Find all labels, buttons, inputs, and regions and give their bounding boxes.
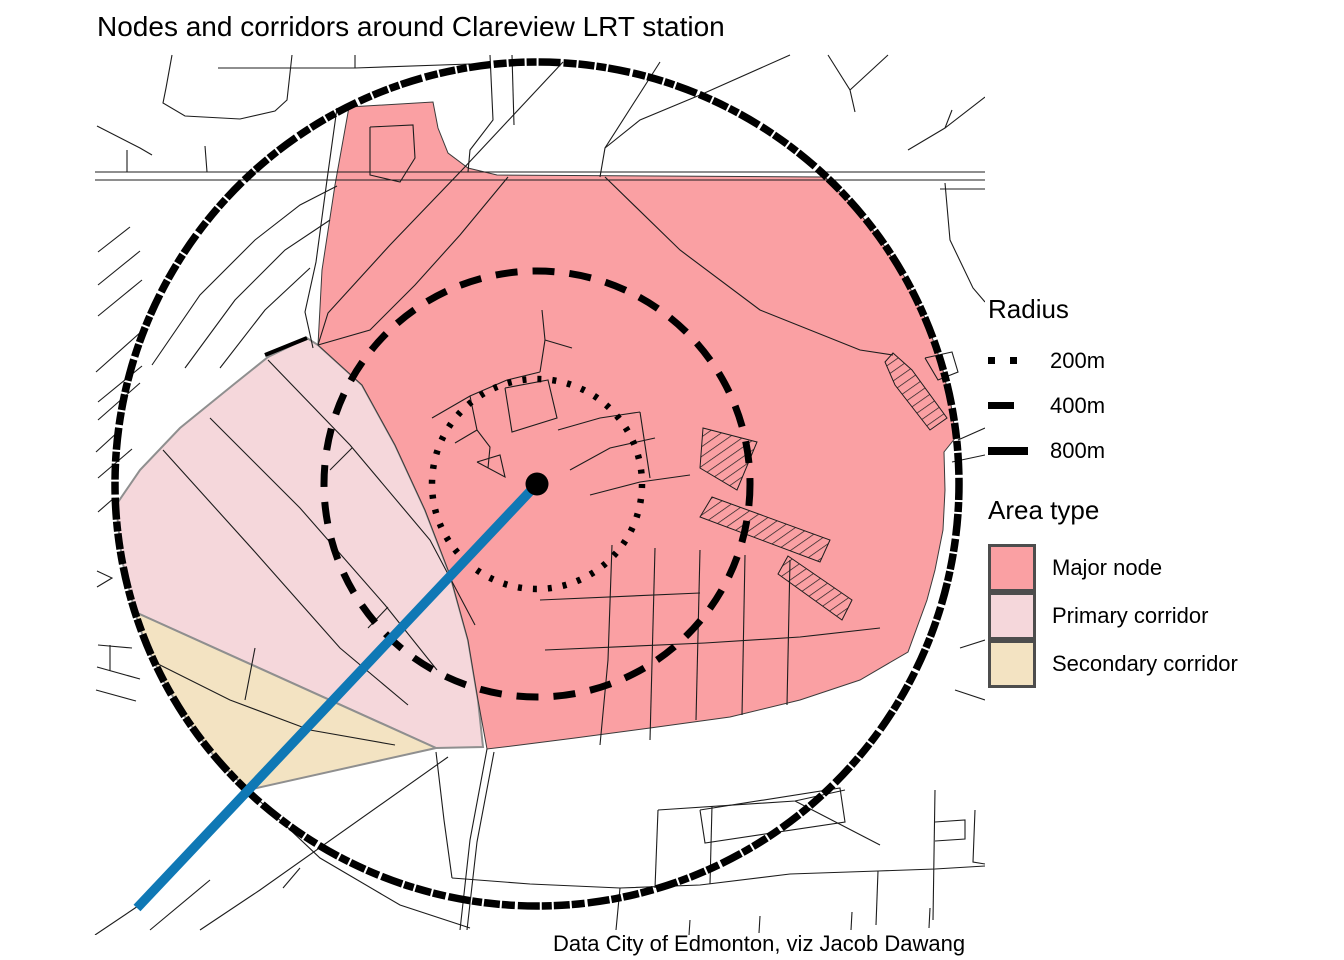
map-road [955, 690, 985, 700]
map-road [152, 186, 337, 365]
page-title: Nodes and corridors around Clareview LRT… [97, 11, 725, 43]
map-road [468, 55, 493, 172]
legend: Radius 200m 400m 800m Area type Major no… [988, 294, 1338, 688]
map-road [218, 55, 355, 68]
map-road [933, 790, 935, 920]
legend-area-label: Primary corridor [1036, 603, 1208, 629]
map-road [98, 280, 142, 316]
legend-radius-item-200m: 200m [988, 338, 1338, 383]
map-road [655, 810, 658, 888]
map-road [929, 908, 930, 928]
legend-area-item: Secondary corridor [988, 640, 1338, 688]
map-road [945, 183, 985, 302]
legend-area-label: Major node [1036, 555, 1162, 581]
figure: Nodes and corridors around Clareview LRT… [0, 0, 1344, 960]
map-road [205, 146, 207, 172]
map-road [97, 571, 112, 587]
map-road [850, 55, 888, 90]
map-road [960, 640, 985, 648]
map-road [935, 820, 965, 841]
map-road [283, 868, 300, 888]
legend-radius-label: 200m [1032, 348, 1105, 374]
legend-area-type: Area type Major node Primary corridor Se… [988, 495, 1338, 688]
map-road [97, 126, 152, 155]
map-road [98, 251, 140, 285]
map-road [851, 912, 852, 930]
map-road [98, 227, 130, 252]
map-road [958, 428, 985, 440]
color-swatch [988, 544, 1036, 592]
color-swatch [988, 640, 1036, 688]
map-road [98, 645, 132, 648]
map-road [436, 752, 452, 878]
map-road [605, 55, 790, 148]
legend-area-label: Secondary corridor [1036, 651, 1238, 677]
station-dot [526, 473, 549, 496]
legend-radius-label: 800m [1032, 438, 1105, 464]
legend-radius-label: 400m [1032, 393, 1105, 419]
map-road [828, 55, 855, 112]
map-road [97, 667, 140, 679]
map-road [452, 866, 985, 888]
map-road [96, 690, 136, 701]
solid-line-swatch [988, 447, 1032, 455]
legend-area-title: Area type [988, 495, 1338, 526]
legend-radius-title: Radius [988, 294, 1338, 325]
caption: Data City of Edmonton, viz Jacob Dawang [553, 931, 965, 957]
dots-line-swatch [988, 357, 1032, 364]
dash-line-swatch [988, 402, 1032, 409]
map-road [876, 871, 878, 925]
legend-area-item: Primary corridor [988, 592, 1338, 640]
map-road [973, 810, 985, 864]
color-swatch [988, 592, 1036, 640]
legend-area-item: Major node [988, 544, 1338, 592]
legend-radius: Radius 200m 400m 800m [988, 294, 1338, 473]
map-road [98, 366, 142, 402]
map-road [163, 55, 292, 119]
map-road [248, 790, 470, 928]
legend-radius-item-400m: 400m [988, 383, 1338, 428]
legend-radius-item-800m: 800m [988, 428, 1338, 473]
